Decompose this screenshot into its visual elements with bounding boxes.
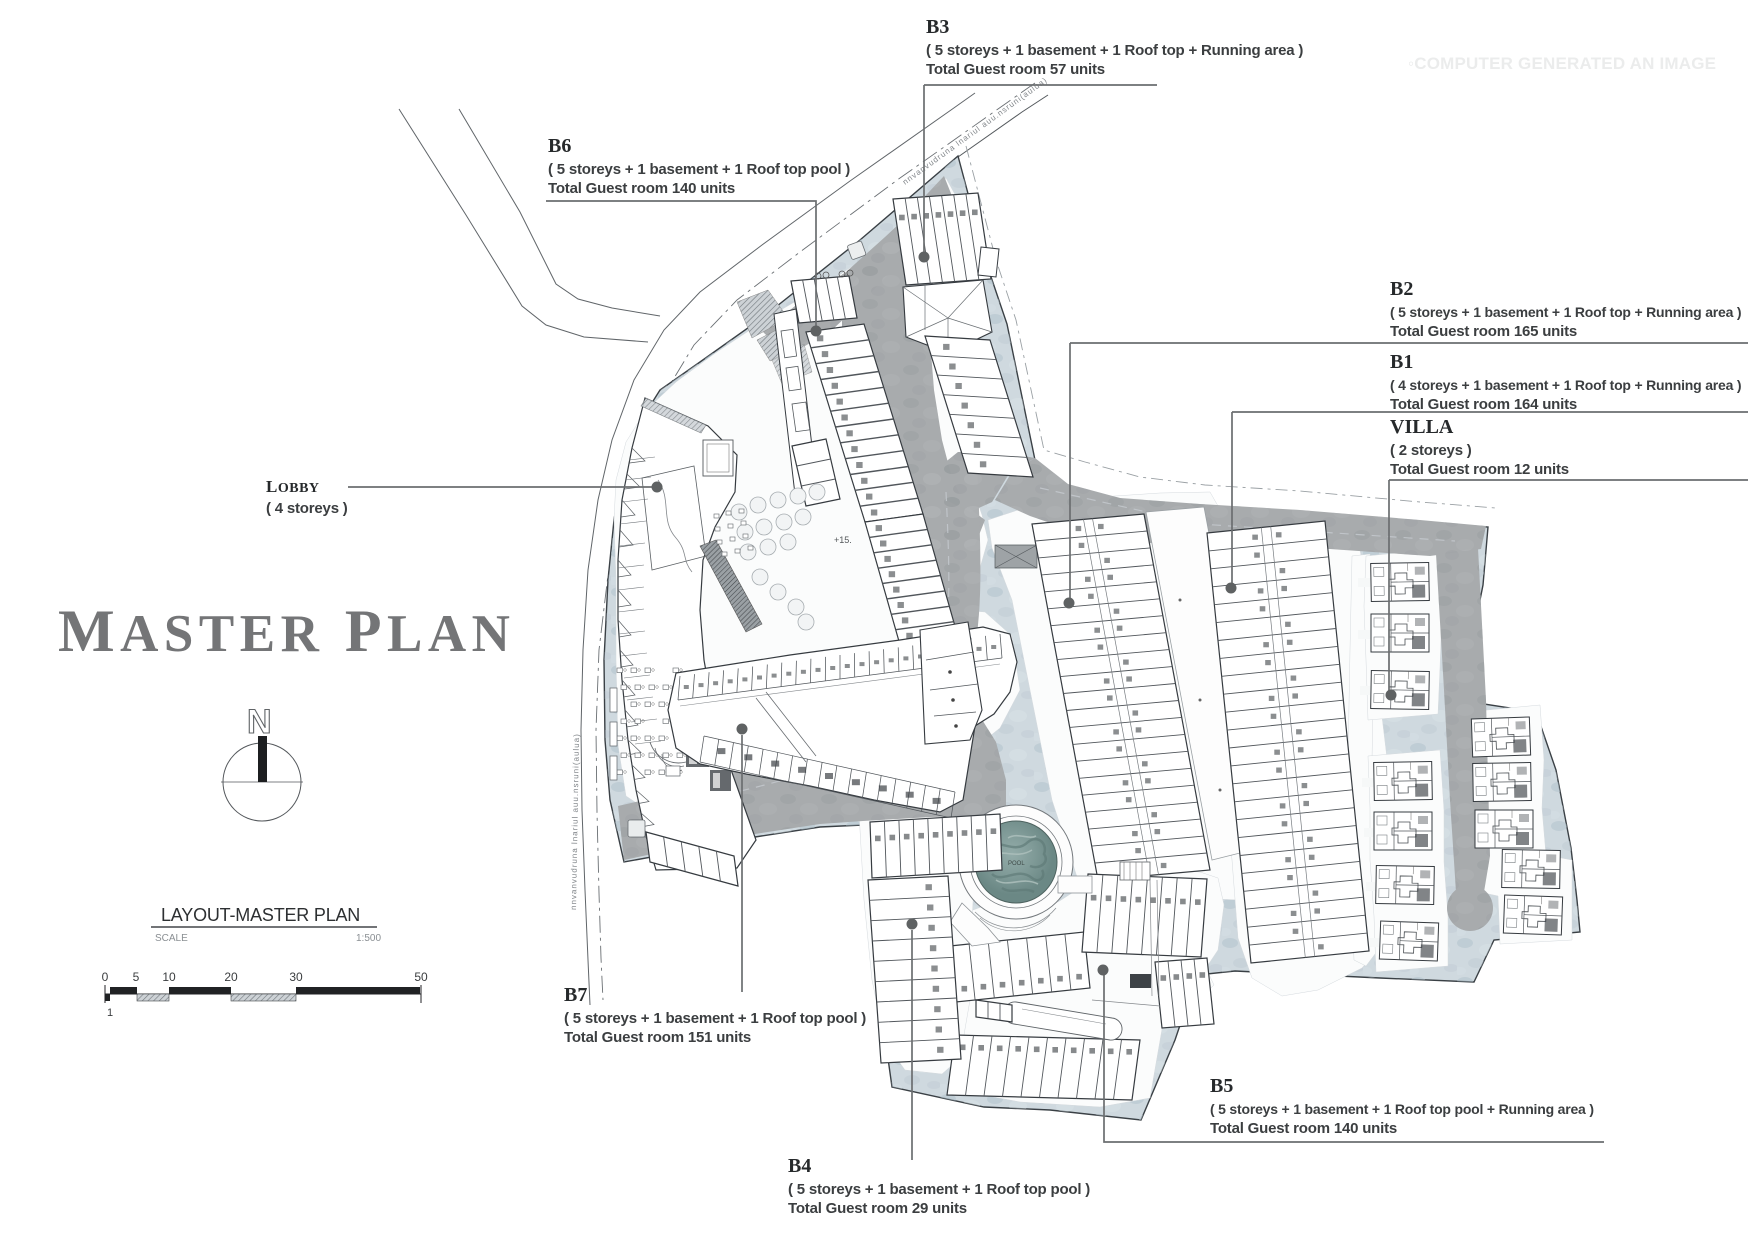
- svg-text:( 5 storeys + 1 basement + 1 R: ( 5 storeys + 1 basement + 1 Roof top po…: [548, 161, 850, 178]
- svg-text:B7: B7: [564, 984, 587, 1006]
- svg-text:+15.: +15.: [834, 535, 852, 545]
- svg-text:N: N: [247, 703, 272, 741]
- svg-text:( 2 storeys ): ( 2 storeys ): [1390, 442, 1472, 459]
- svg-text:◦COMPUTER GENERATED AN IMAGE: ◦COMPUTER GENERATED AN IMAGE: [1408, 54, 1716, 73]
- svg-text:Total Guest room 57 units: Total Guest room 57 units: [926, 61, 1105, 78]
- svg-text:B1: B1: [1390, 351, 1413, 373]
- svg-text:( 5 storeys + 1 basement + 1 R: ( 5 storeys + 1 basement + 1 Roof top + …: [1390, 304, 1741, 320]
- svg-text:VILLA: VILLA: [1390, 416, 1454, 438]
- svg-text:Total Guest room 165 units: Total Guest room 165 units: [1390, 323, 1577, 340]
- svg-text:1:500: 1:500: [356, 933, 381, 944]
- svg-text:POOL: POOL: [1008, 861, 1025, 867]
- svg-text:B3: B3: [926, 16, 949, 38]
- svg-text:0: 0: [102, 970, 109, 984]
- svg-text:20: 20: [224, 970, 238, 984]
- svg-text:MASTER PLAN: MASTER PLAN: [58, 598, 515, 664]
- svg-text:( 5 storeys + 1 basement + 1 R: ( 5 storeys + 1 basement + 1 Roof top po…: [564, 1010, 866, 1027]
- svg-text:Total Guest room 151 units: Total Guest room 151 units: [564, 1029, 751, 1046]
- svg-text:B4: B4: [788, 1155, 811, 1177]
- svg-text:LAYOUT-MASTER PLAN: LAYOUT-MASTER PLAN: [161, 905, 360, 925]
- svg-text:( 4 storeys ): ( 4 storeys ): [266, 500, 348, 517]
- svg-text:( 5 storeys + 1 basement + 1 R: ( 5 storeys + 1 basement + 1 Roof top po…: [788, 1181, 1090, 1198]
- svg-text:30: 30: [289, 970, 303, 984]
- svg-text:( 5 storeys + 1 basement + 1 R: ( 5 storeys + 1 basement + 1 Roof top po…: [1210, 1101, 1594, 1117]
- svg-text:5: 5: [133, 970, 140, 984]
- svg-text:Total Guest room 140 units: Total Guest room 140 units: [1210, 1120, 1397, 1137]
- svg-text:SCALE: SCALE: [155, 933, 188, 944]
- svg-text:Total Guest room 164 units: Total Guest room 164 units: [1390, 396, 1577, 413]
- svg-text:1: 1: [107, 1007, 113, 1019]
- svg-text:( 4 storeys + 1 basement + 1 R: ( 4 storeys + 1 basement + 1 Roof top + …: [1390, 377, 1741, 393]
- svg-text:Total Guest room 29 units: Total Guest room 29 units: [788, 1200, 967, 1217]
- svg-text:B6: B6: [548, 135, 571, 157]
- svg-text:50: 50: [414, 970, 428, 984]
- svg-text:B5: B5: [1210, 1075, 1233, 1097]
- svg-text:10: 10: [162, 970, 176, 984]
- svg-text:Total Guest room 140 units: Total Guest room 140 units: [548, 180, 735, 197]
- svg-text:B2: B2: [1390, 278, 1413, 300]
- svg-text:Total Guest room 12 units: Total Guest room 12 units: [1390, 461, 1569, 478]
- svg-text:( 5 storeys + 1 basement + 1 R: ( 5 storeys + 1 basement + 1 Roof top + …: [926, 42, 1303, 59]
